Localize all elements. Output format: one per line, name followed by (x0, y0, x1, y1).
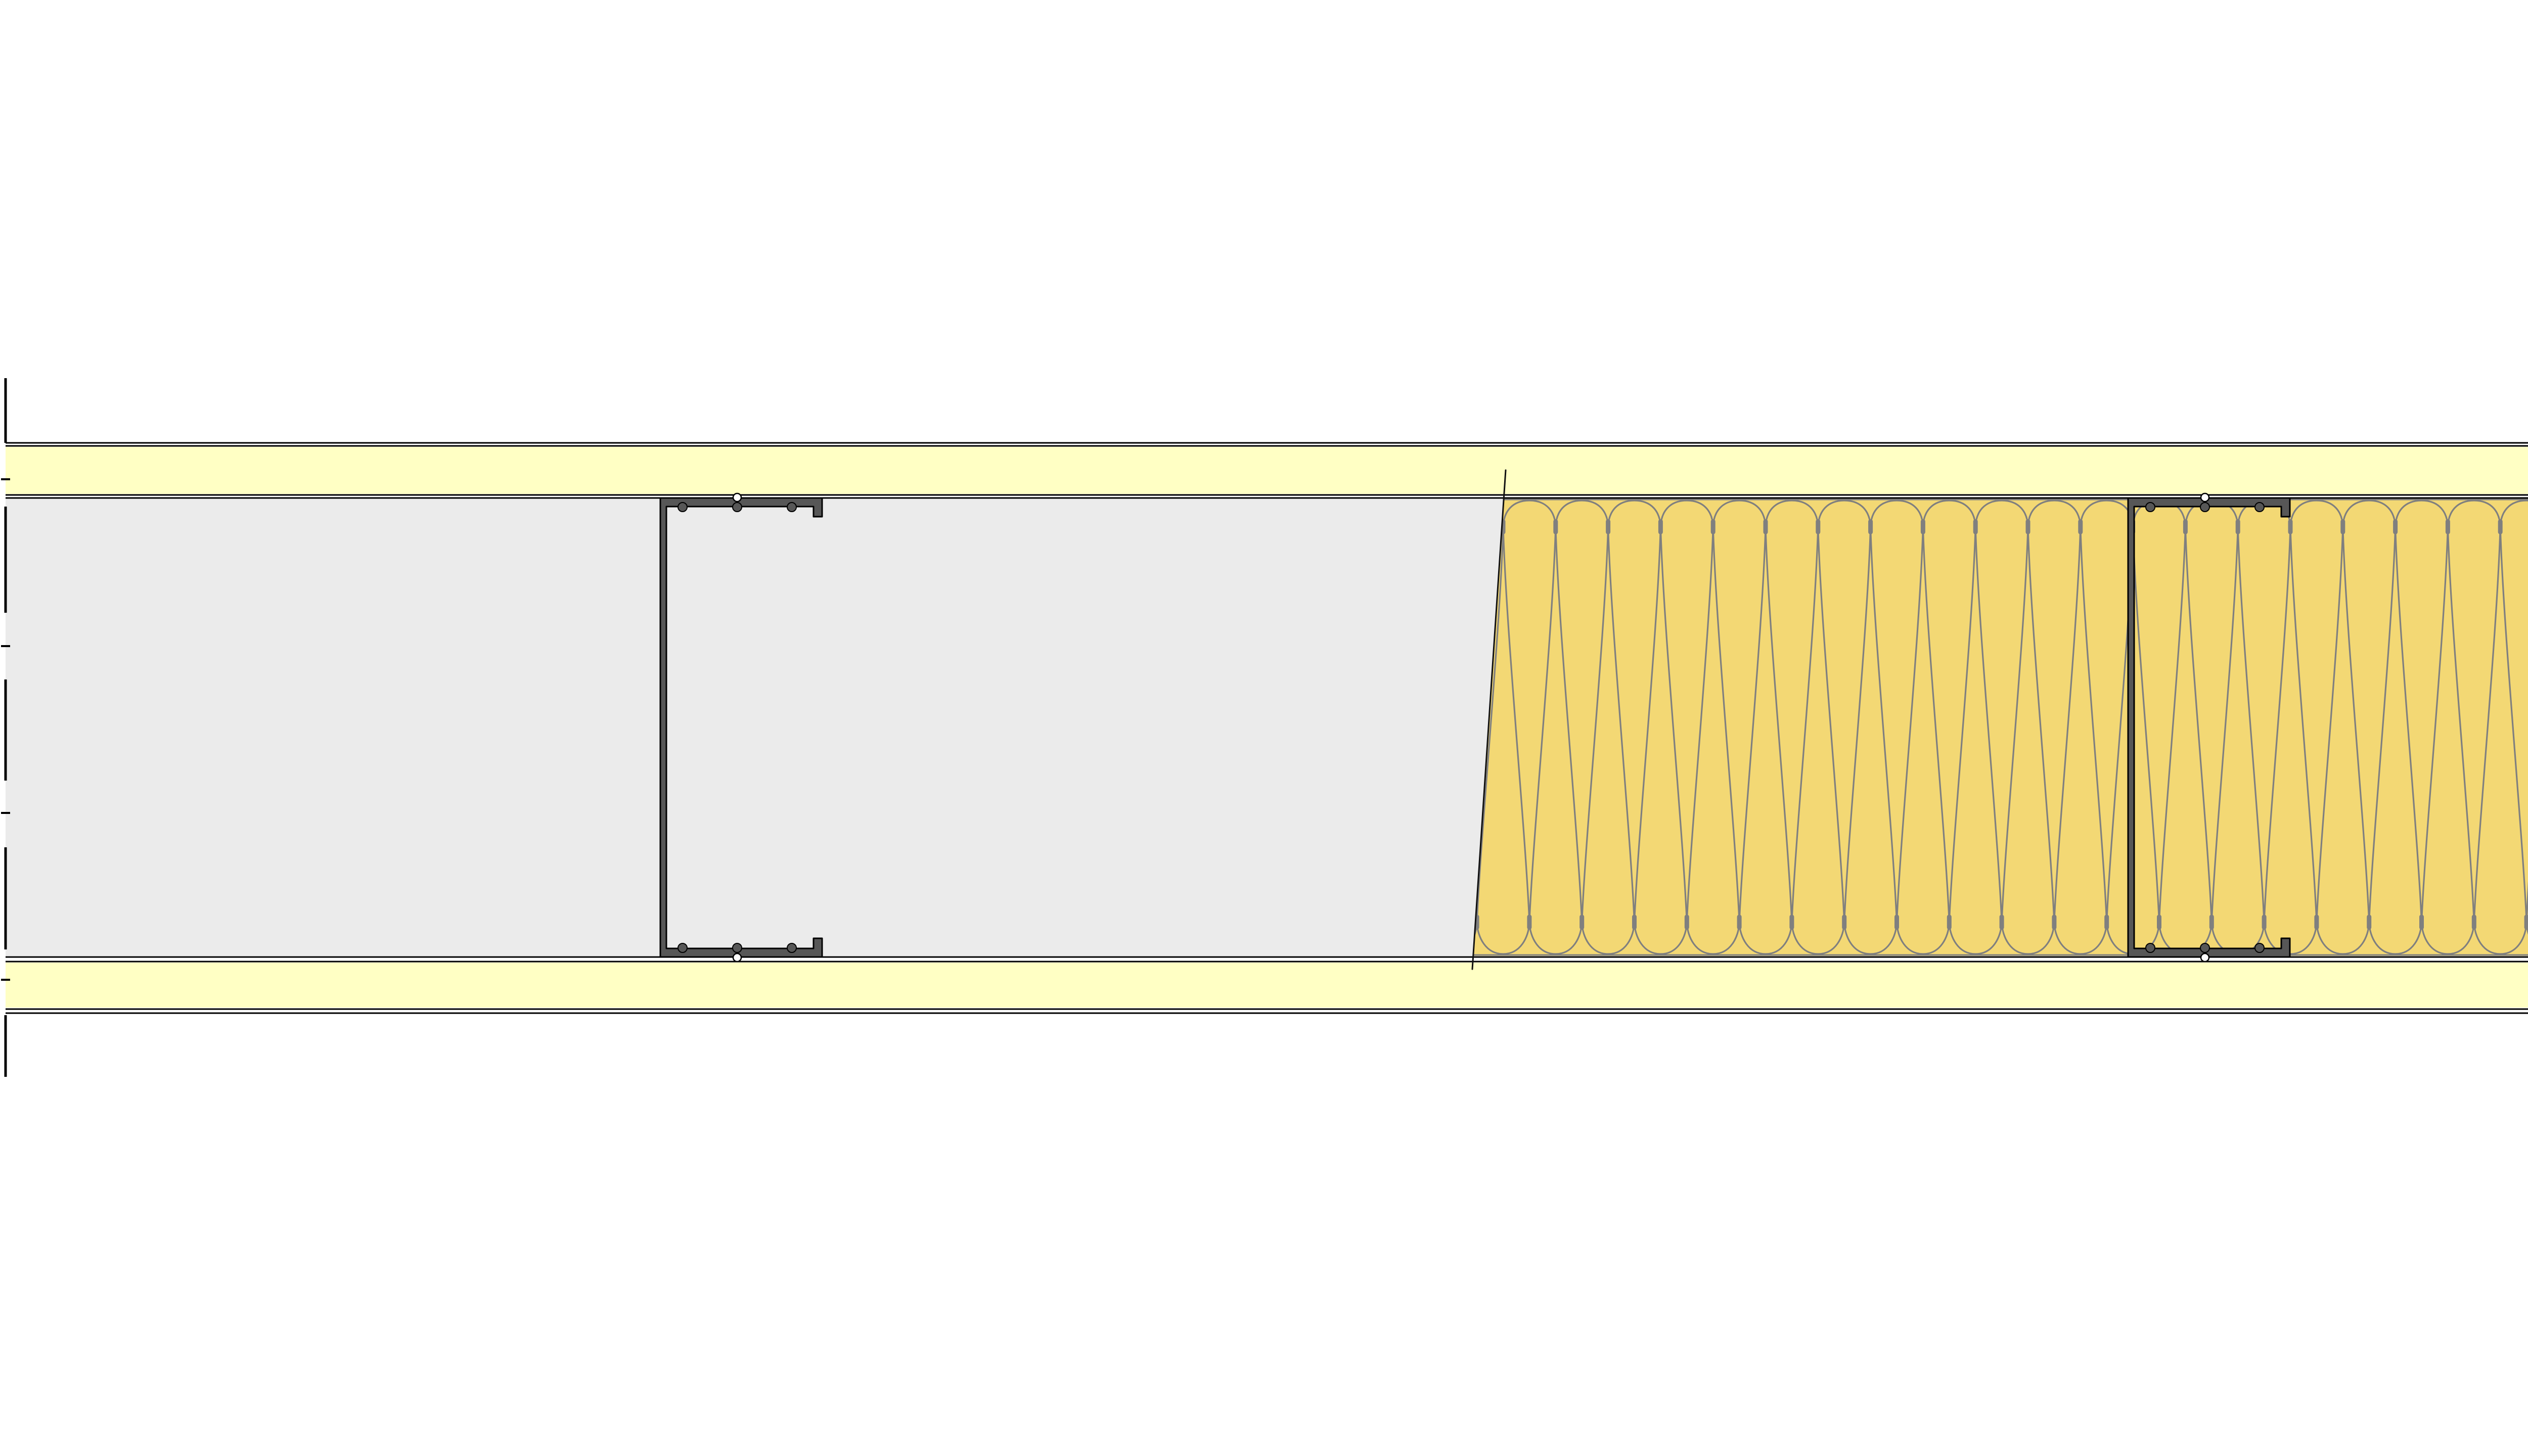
batt-neck-blob-top (1921, 519, 1925, 534)
stud-dimple (678, 943, 687, 952)
batt-neck-blob-top (1606, 519, 1610, 534)
batt-neck-blob-bottom (1947, 915, 1952, 930)
stud-dimple (787, 503, 796, 512)
batt-neck-blob-top (2393, 519, 2398, 534)
batt-neck-blob-bottom (2157, 915, 2161, 930)
batt-neck-blob-bottom (2104, 915, 2109, 930)
batt-neck-blob-top (1553, 519, 1558, 534)
plasterboard-lining-top (6, 442, 2528, 499)
batt-neck-blob-top (1711, 519, 1716, 534)
batt-neck-blob-bottom (2524, 915, 2528, 930)
batt-neck-blob-top (2026, 519, 2030, 534)
batt-neck-blob-bottom (1685, 915, 1689, 930)
batt-neck-blob-top (2340, 519, 2345, 534)
stud-dimple (2146, 943, 2155, 952)
batt-neck-blob-bottom (2419, 915, 2424, 930)
stud-dimple (733, 503, 742, 512)
batt-neck-blob-bottom (1894, 915, 1899, 930)
batt-neck-blob-top (1764, 519, 1768, 534)
batt-neck-blob-bottom (1842, 915, 1846, 930)
stud-notch (733, 493, 741, 502)
stud-notch (2201, 493, 2209, 502)
board-face-line (6, 1013, 2528, 1014)
batt-neck-blob-top (2078, 519, 2083, 534)
batt-neck-blob-top (2498, 519, 2503, 534)
board-face-line (6, 442, 2528, 444)
plasterboard-bottom-fill (6, 963, 2528, 1008)
batt-neck-blob-bottom (2472, 915, 2476, 930)
batt-neck-blob-bottom (2052, 915, 2056, 930)
batt-neck-blob-bottom (1789, 915, 1794, 930)
board-face-line (6, 1009, 2528, 1010)
gridline-tick (1, 645, 10, 647)
batt-neck-blob-top (1868, 519, 1873, 534)
gridline-dash (5, 507, 7, 613)
stud-dimple (2146, 503, 2155, 512)
batt-neck-blob-top (1816, 519, 1820, 534)
stud-notch (2201, 953, 2209, 962)
insulation-batt (1424, 498, 2528, 956)
stud-dimple (2255, 503, 2264, 512)
plasterboard-lining-bottom (6, 957, 2528, 1014)
batt-neck-blob-bottom (2262, 915, 2267, 930)
partition-section-drawing (0, 0, 2528, 1456)
batt-neck-blob-bottom (1527, 915, 1531, 930)
batt-neck-blob-bottom (2209, 915, 2214, 930)
gridline-tick (1, 979, 10, 981)
stud-dimple (2200, 943, 2209, 952)
stud-dimple (2200, 503, 2209, 512)
insulation-fill (1446, 498, 2528, 956)
board-face-line (6, 445, 2528, 447)
batt-neck-blob-top (2446, 519, 2450, 534)
stud-dimple (787, 943, 796, 952)
stud-dimple (678, 503, 687, 512)
batt-neck-blob-bottom (2314, 915, 2319, 930)
wall-section-svg (0, 0, 2528, 1456)
batt-neck-blob-top (1658, 519, 1663, 534)
batt-neck-blob-top (2288, 519, 2293, 534)
batt-neck-blob-bottom (1579, 915, 1584, 930)
board-face-line (6, 494, 2528, 496)
plasterboard-top-fill (6, 447, 2528, 494)
batt-neck-blob-top (2236, 519, 2240, 534)
batt-neck-blob-bottom (1737, 915, 1742, 930)
batt-neck-blob-top (1973, 519, 1978, 534)
stud-dimple (2255, 943, 2264, 952)
gridline-tick (1, 812, 10, 814)
batt-neck-blob-bottom (2000, 915, 2004, 930)
batt-neck-blob-bottom (2367, 915, 2371, 930)
stud-dimple (733, 943, 742, 952)
gridline-tick (1, 478, 10, 480)
gridline-dash (5, 378, 7, 443)
insulation-top-edge (1446, 499, 2528, 500)
gridline-dash (5, 847, 7, 949)
gridline-dash (5, 1015, 7, 1077)
batt-neck-blob-top (2183, 519, 2188, 534)
stud-notch (733, 953, 741, 962)
gridline-dash (5, 679, 7, 781)
insulation-bottom-edge (1446, 954, 2528, 956)
batt-neck-blob-bottom (1632, 915, 1637, 930)
board-face-line (6, 961, 2528, 963)
